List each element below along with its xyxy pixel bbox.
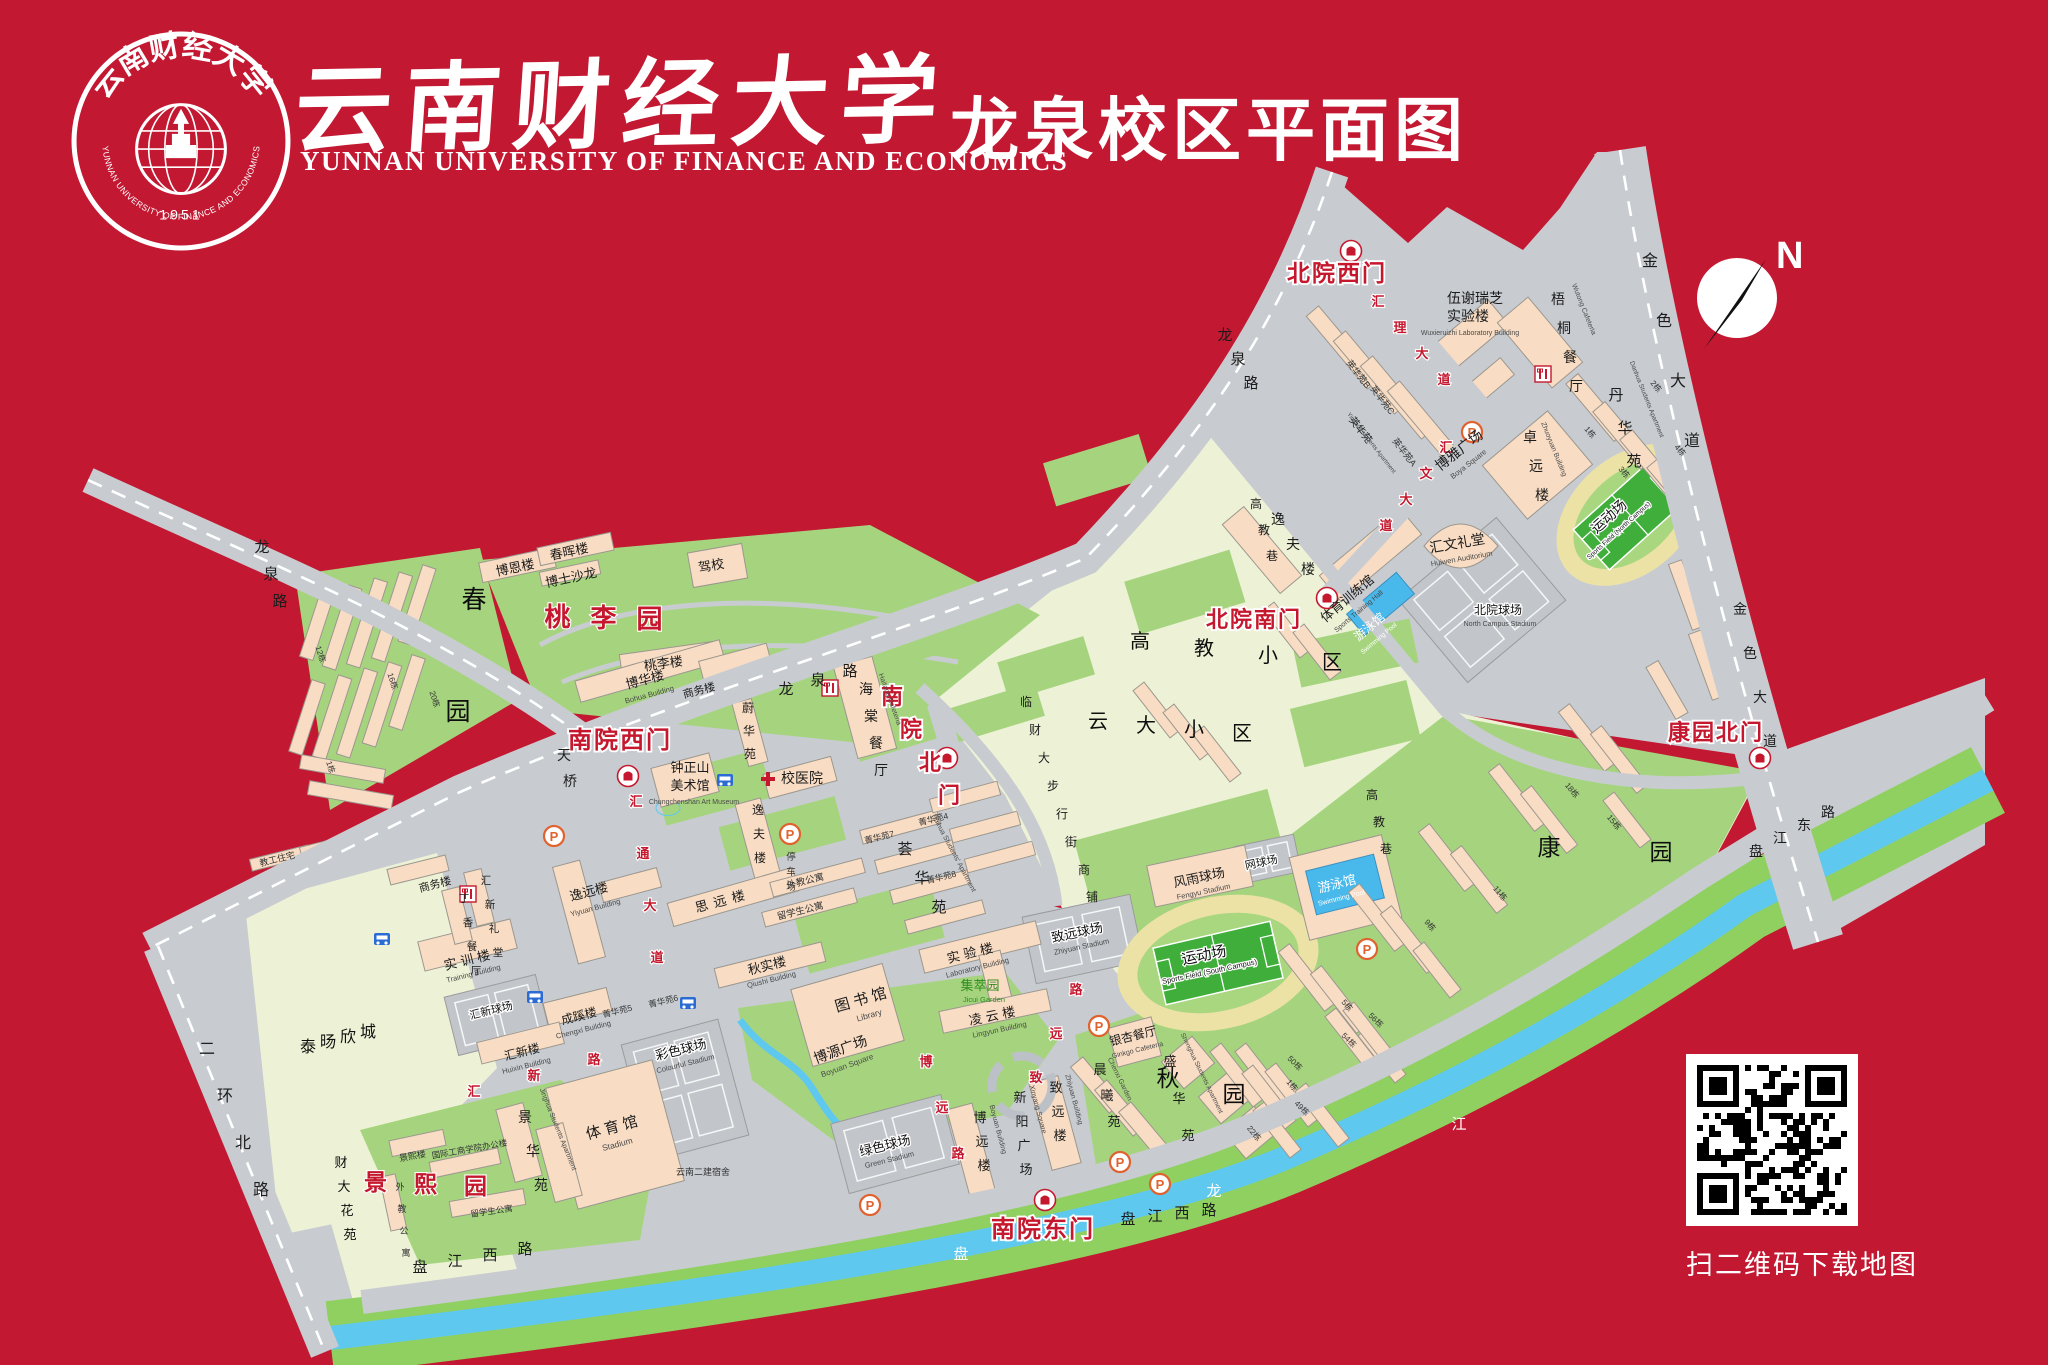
map-title: 龙泉校区平面图	[950, 74, 1468, 174]
map-label: 南院东门	[991, 1215, 1095, 1243]
map-label: 北院南门	[1206, 607, 1302, 632]
svg-text:P: P	[866, 1198, 875, 1213]
food-icon	[1535, 366, 1551, 382]
map-label: 伍谢瑞芝	[1447, 290, 1503, 306]
map-label: 景熙园	[364, 1169, 488, 1199]
map-label: 钟正山	[670, 760, 709, 775]
bus-icon	[374, 933, 390, 945]
bus-icon	[717, 774, 733, 786]
svg-text:云南财经大学: 云南财经大学	[85, 30, 278, 104]
p-icon: P	[1150, 1174, 1170, 1194]
gate-icon	[1750, 748, 1771, 769]
p-icon: P	[1357, 939, 1377, 959]
p-icon: P	[1089, 1016, 1109, 1036]
map-label: 江	[1451, 1116, 1466, 1133]
svg-text:P: P	[1116, 1155, 1125, 1170]
svg-text:P: P	[1363, 942, 1372, 957]
bus-icon	[527, 991, 543, 1003]
map-label: 北院球场	[1474, 603, 1522, 617]
map-label: Wuxieruizhi Laboratory Building	[1421, 330, 1519, 337]
seal-year: 1951	[159, 207, 203, 223]
map-label: North Campus Stadium	[1464, 621, 1537, 628]
svg-text:P: P	[786, 827, 795, 842]
compass-circle	[1697, 258, 1777, 338]
compass-north-label: N	[1776, 235, 1803, 277]
qr-code	[1686, 1054, 1858, 1226]
globe-icon	[131, 105, 232, 194]
p-icon: P	[1110, 1152, 1130, 1172]
map-label: 盘	[953, 1245, 968, 1263]
p-icon: P	[860, 1195, 880, 1215]
map-label: 北院西门	[1287, 260, 1387, 286]
map-label: 实验楼	[1447, 308, 1489, 324]
campus-map-poster: PPPPPPPP 北院西门北院南门南院西门南院北门南院东门康园北门云大小区高教小…	[0, 0, 2048, 1365]
p-icon: P	[780, 824, 800, 844]
map-label: 云南二建宿舍	[676, 1166, 730, 1177]
bus-icon	[680, 997, 696, 1009]
map-label: Jicui Garden	[963, 995, 1005, 1004]
map-label: 美术馆	[670, 778, 709, 793]
university-seal: 云南财经大学 YUNNAN UNIVERSITY OF FINANCE AND …	[70, 30, 292, 252]
map-label: 校医院	[781, 770, 823, 786]
map-label: Chungchenshan Art Museum	[649, 799, 739, 806]
map-label: 集萃园	[960, 978, 999, 993]
map-label: 龙	[1206, 1183, 1221, 1200]
svg-text:P: P	[1095, 1019, 1104, 1034]
map-label: 春	[461, 586, 486, 614]
map-canvas: PPPPPPPP 北院西门北院南门南院西门南院北门南院东门康园北门云大小区高教小…	[0, 0, 2048, 1365]
map-label: 园	[445, 698, 470, 726]
gate-icon	[1341, 241, 1362, 262]
svg-text:P: P	[1156, 1177, 1165, 1192]
p-icon: P	[544, 826, 564, 846]
map-label: 蔚华苑	[742, 701, 756, 761]
map-label: 南院西门	[568, 726, 672, 754]
seal-ring-cn: 云南财经大学	[85, 30, 278, 104]
qr-caption: 扫二维码下载地图	[1686, 1243, 1918, 1282]
map-label: 康园北门	[1668, 720, 1764, 745]
svg-text:P: P	[550, 829, 559, 844]
gate-icon	[1035, 1190, 1056, 1211]
map-label: 桃李园	[544, 602, 663, 634]
gate-icon	[618, 766, 639, 787]
map-label: 逸夫楼	[752, 803, 766, 865]
